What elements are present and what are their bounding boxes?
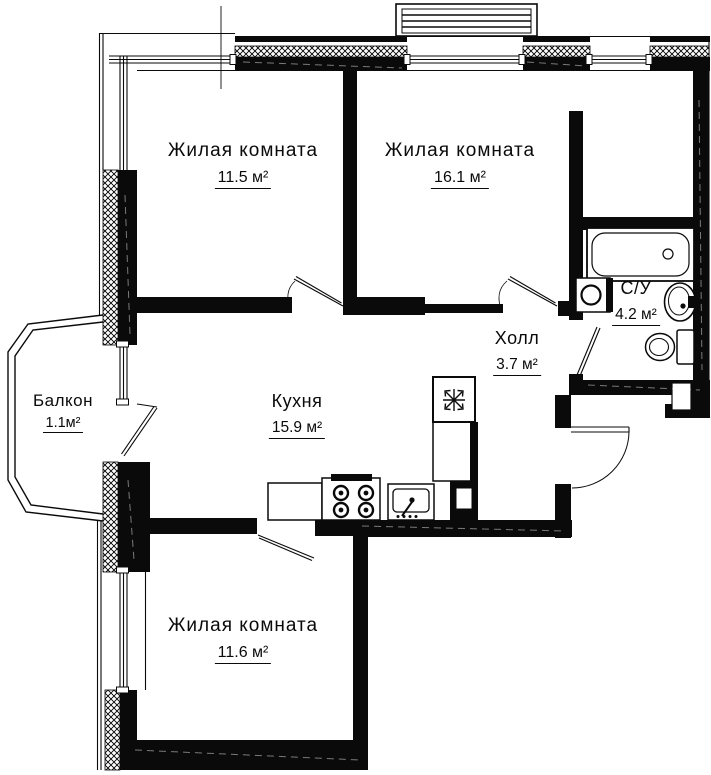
door-bathroom — [577, 327, 600, 376]
floor-plan: Жилая комната 11.5 м² Жилая комната 16.1… — [0, 0, 711, 775]
fridge — [433, 377, 478, 481]
floor-plan-drawing — [0, 0, 711, 775]
kitchen-stove — [322, 474, 380, 520]
room-name: Жилая комната — [385, 141, 535, 162]
entry-door — [571, 427, 629, 488]
room-name: Кухня — [272, 392, 323, 412]
room-area: 16.1 м² — [431, 169, 489, 189]
toilet — [646, 330, 695, 364]
door-room3 — [258, 535, 314, 561]
room-name: Жилая комната — [168, 616, 318, 637]
room-name: Жилая комната — [168, 141, 318, 162]
room-name: С/У — [621, 279, 652, 299]
room-area: 11.6 м² — [215, 644, 272, 664]
room-area: 1.1м² — [43, 415, 84, 433]
upper-balcony-slab — [396, 4, 537, 36]
door-room2 — [499, 277, 557, 313]
label-living-room-1: Жилая комната 11.5 м² — [168, 141, 318, 189]
label-living-room-3: Жилая комната 11.6 м² — [168, 616, 318, 664]
room-name: Балкон — [33, 392, 93, 411]
vent-shaft — [672, 383, 691, 410]
bathtub — [587, 228, 694, 281]
room-area: 11.5 м² — [215, 169, 272, 189]
washing-machine — [576, 278, 613, 312]
door-room1 — [288, 277, 343, 313]
room-area: 15.9 м² — [269, 419, 325, 439]
label-bathroom: С/У 4.2 м² — [612, 279, 660, 326]
room-area: 3.7 м² — [493, 356, 541, 376]
label-balcony: Балкон 1.1м² — [33, 392, 93, 433]
label-hall: Холл 3.7 м² — [493, 329, 541, 376]
label-kitchen: Кухня 15.9 м² — [269, 392, 325, 439]
label-living-room-2: Жилая комната 16.1 м² — [385, 141, 535, 189]
door-balcony — [122, 404, 158, 456]
room-name: Холл — [495, 329, 539, 349]
top-exterior-wall — [235, 36, 710, 71]
room-area: 4.2 м² — [612, 306, 660, 326]
kitchen-counter — [268, 483, 322, 520]
kitchen-duct — [450, 481, 478, 520]
snowflake-icon — [443, 389, 465, 411]
kitchen-sink — [388, 484, 434, 520]
bathroom-sink — [665, 283, 697, 321]
